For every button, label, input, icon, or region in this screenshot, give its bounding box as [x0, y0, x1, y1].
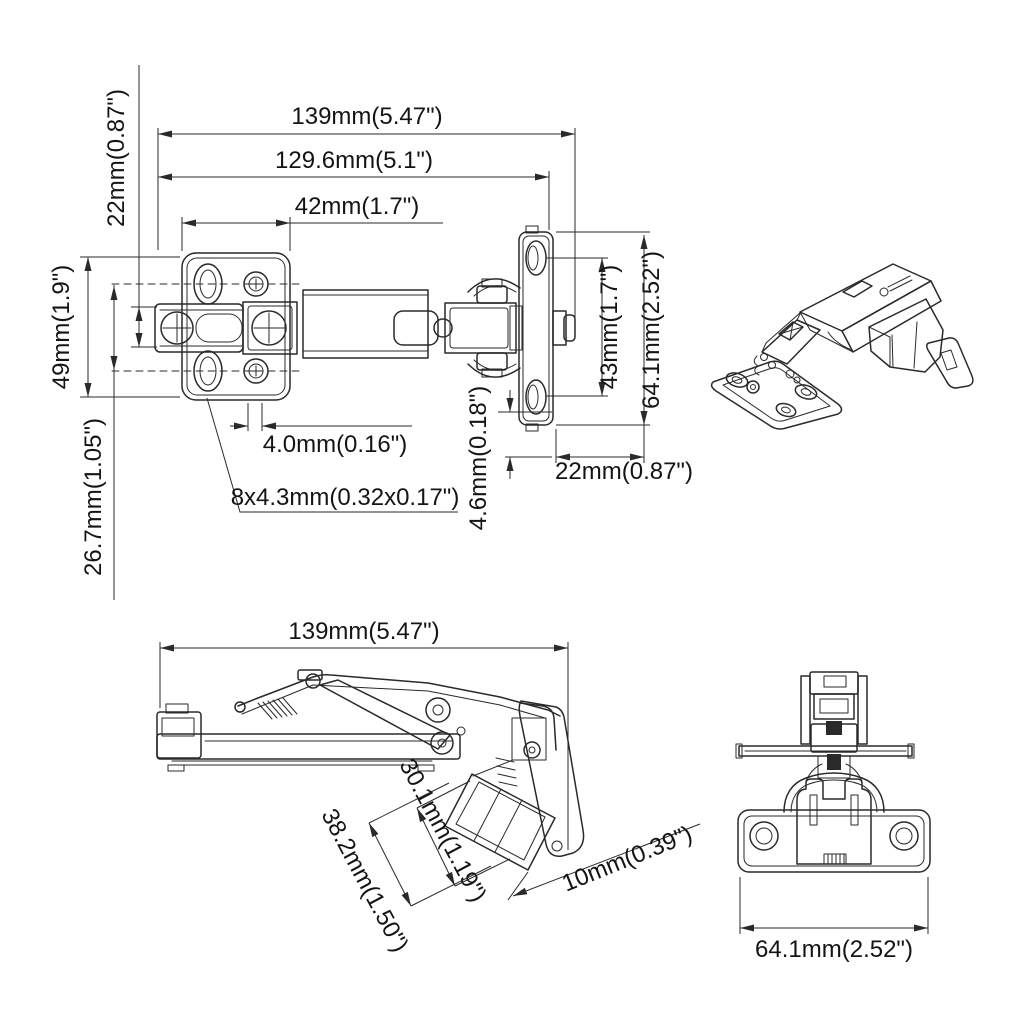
dim-label-offset-left: 22mm(0.87")	[103, 89, 130, 227]
dim-label-cup-offset: 22mm(0.87")	[555, 458, 693, 485]
dim-label-plate-lower: 26.7mm(1.05")	[80, 418, 107, 576]
dim-label-plate-width: 42mm(1.7")	[295, 193, 420, 220]
top-view: 139mm(5.47") 129.6mm(5.1") 42mm(1.7") 22…	[48, 65, 693, 600]
dim-label-slot-gap: 4.0mm(0.16")	[263, 431, 408, 458]
side-view-dimensions: 139mm(5.47") 30.1mm(1.19") 38.2mm(1.50")…	[160, 618, 700, 957]
dim-label-total-length-top: 139mm(5.47")	[291, 103, 442, 130]
dim-label-plate-height: 49mm(1.9")	[48, 265, 75, 390]
hinge-dimension-drawing: 139mm(5.47") 129.6mm(5.1") 42mm(1.7") 22…	[0, 0, 1024, 1024]
dim-label-cup-hole-spacing: 43mm(1.7")	[596, 265, 623, 390]
front-view: 64.1mm(2.52")	[736, 672, 930, 963]
front-view-drawing	[736, 672, 930, 872]
dim-label-plate-length-front: 64.1mm(2.52")	[755, 936, 913, 963]
dim-label-total-length-side: 139mm(5.47")	[288, 618, 439, 645]
dim-label-cup-gap: 4.6mm(0.18")	[465, 386, 492, 531]
technical-drawing-page: 139mm(5.47") 129.6mm(5.1") 42mm(1.7") 22…	[0, 0, 1024, 1024]
dim-label-arm-length: 129.6mm(5.1")	[275, 147, 433, 174]
dim-label-cup-total: 38.2mm(1.50")	[316, 804, 414, 956]
side-view-drawing	[157, 670, 584, 870]
top-view-dimensions: 139mm(5.47") 129.6mm(5.1") 42mm(1.7") 22…	[48, 65, 693, 600]
front-view-dimensions: 64.1mm(2.52")	[740, 877, 928, 963]
isometric-view	[712, 264, 973, 429]
dim-label-cup-plate-height: 64.1mm(2.52")	[638, 251, 665, 409]
side-view: 139mm(5.47") 30.1mm(1.19") 38.2mm(1.50")…	[157, 618, 700, 957]
top-view-drawing	[112, 226, 575, 431]
dim-label-holes: 8x4.3mm(0.32x0.17")	[231, 484, 460, 511]
dim-label-cup-clearance: 10mm(0.39")	[558, 821, 696, 898]
